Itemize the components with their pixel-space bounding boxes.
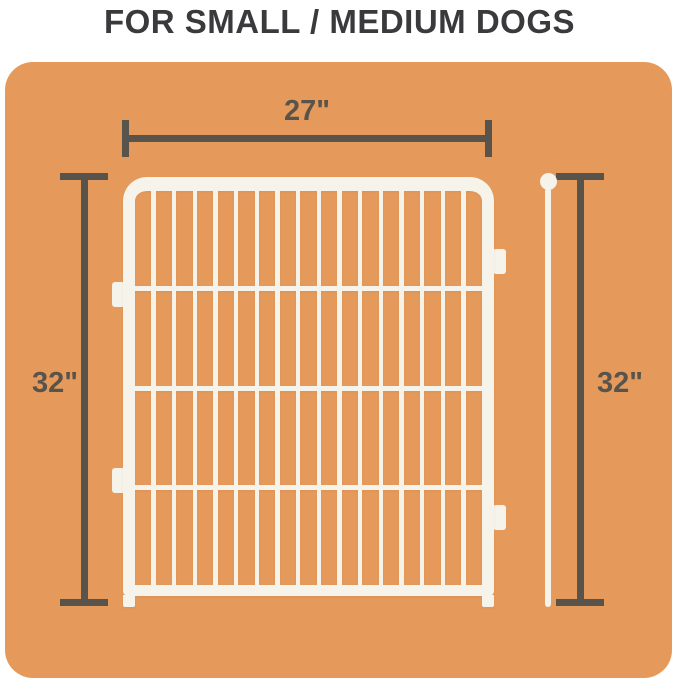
connector-tab (493, 505, 506, 530)
page-title: FOR SMALL / MEDIUM DOGS (0, 2, 679, 42)
stake-shaft (545, 188, 551, 607)
width-dimension-line (122, 120, 492, 157)
height-dimension-left-line (60, 173, 108, 606)
height-dimension-right-line (556, 173, 604, 606)
product-infographic: FOR SMALL / MEDIUM DOGS 27" 32" 32" (0, 0, 679, 682)
fence-horizontal-bar (135, 485, 482, 490)
dimension-line (81, 178, 88, 601)
dimension-line (577, 178, 584, 601)
fence-leg-left (123, 595, 135, 607)
height-dimension-right-label: 32" (597, 368, 679, 398)
fence-horizontal-bar (135, 386, 482, 391)
orange-panel: 27" 32" 32" (5, 62, 672, 678)
fence-horizontal-bar (135, 286, 482, 291)
dimension-line (127, 135, 487, 142)
fence-leg-right (482, 595, 494, 607)
connector-tab (493, 249, 506, 274)
fence-panel-illustration (123, 177, 494, 596)
